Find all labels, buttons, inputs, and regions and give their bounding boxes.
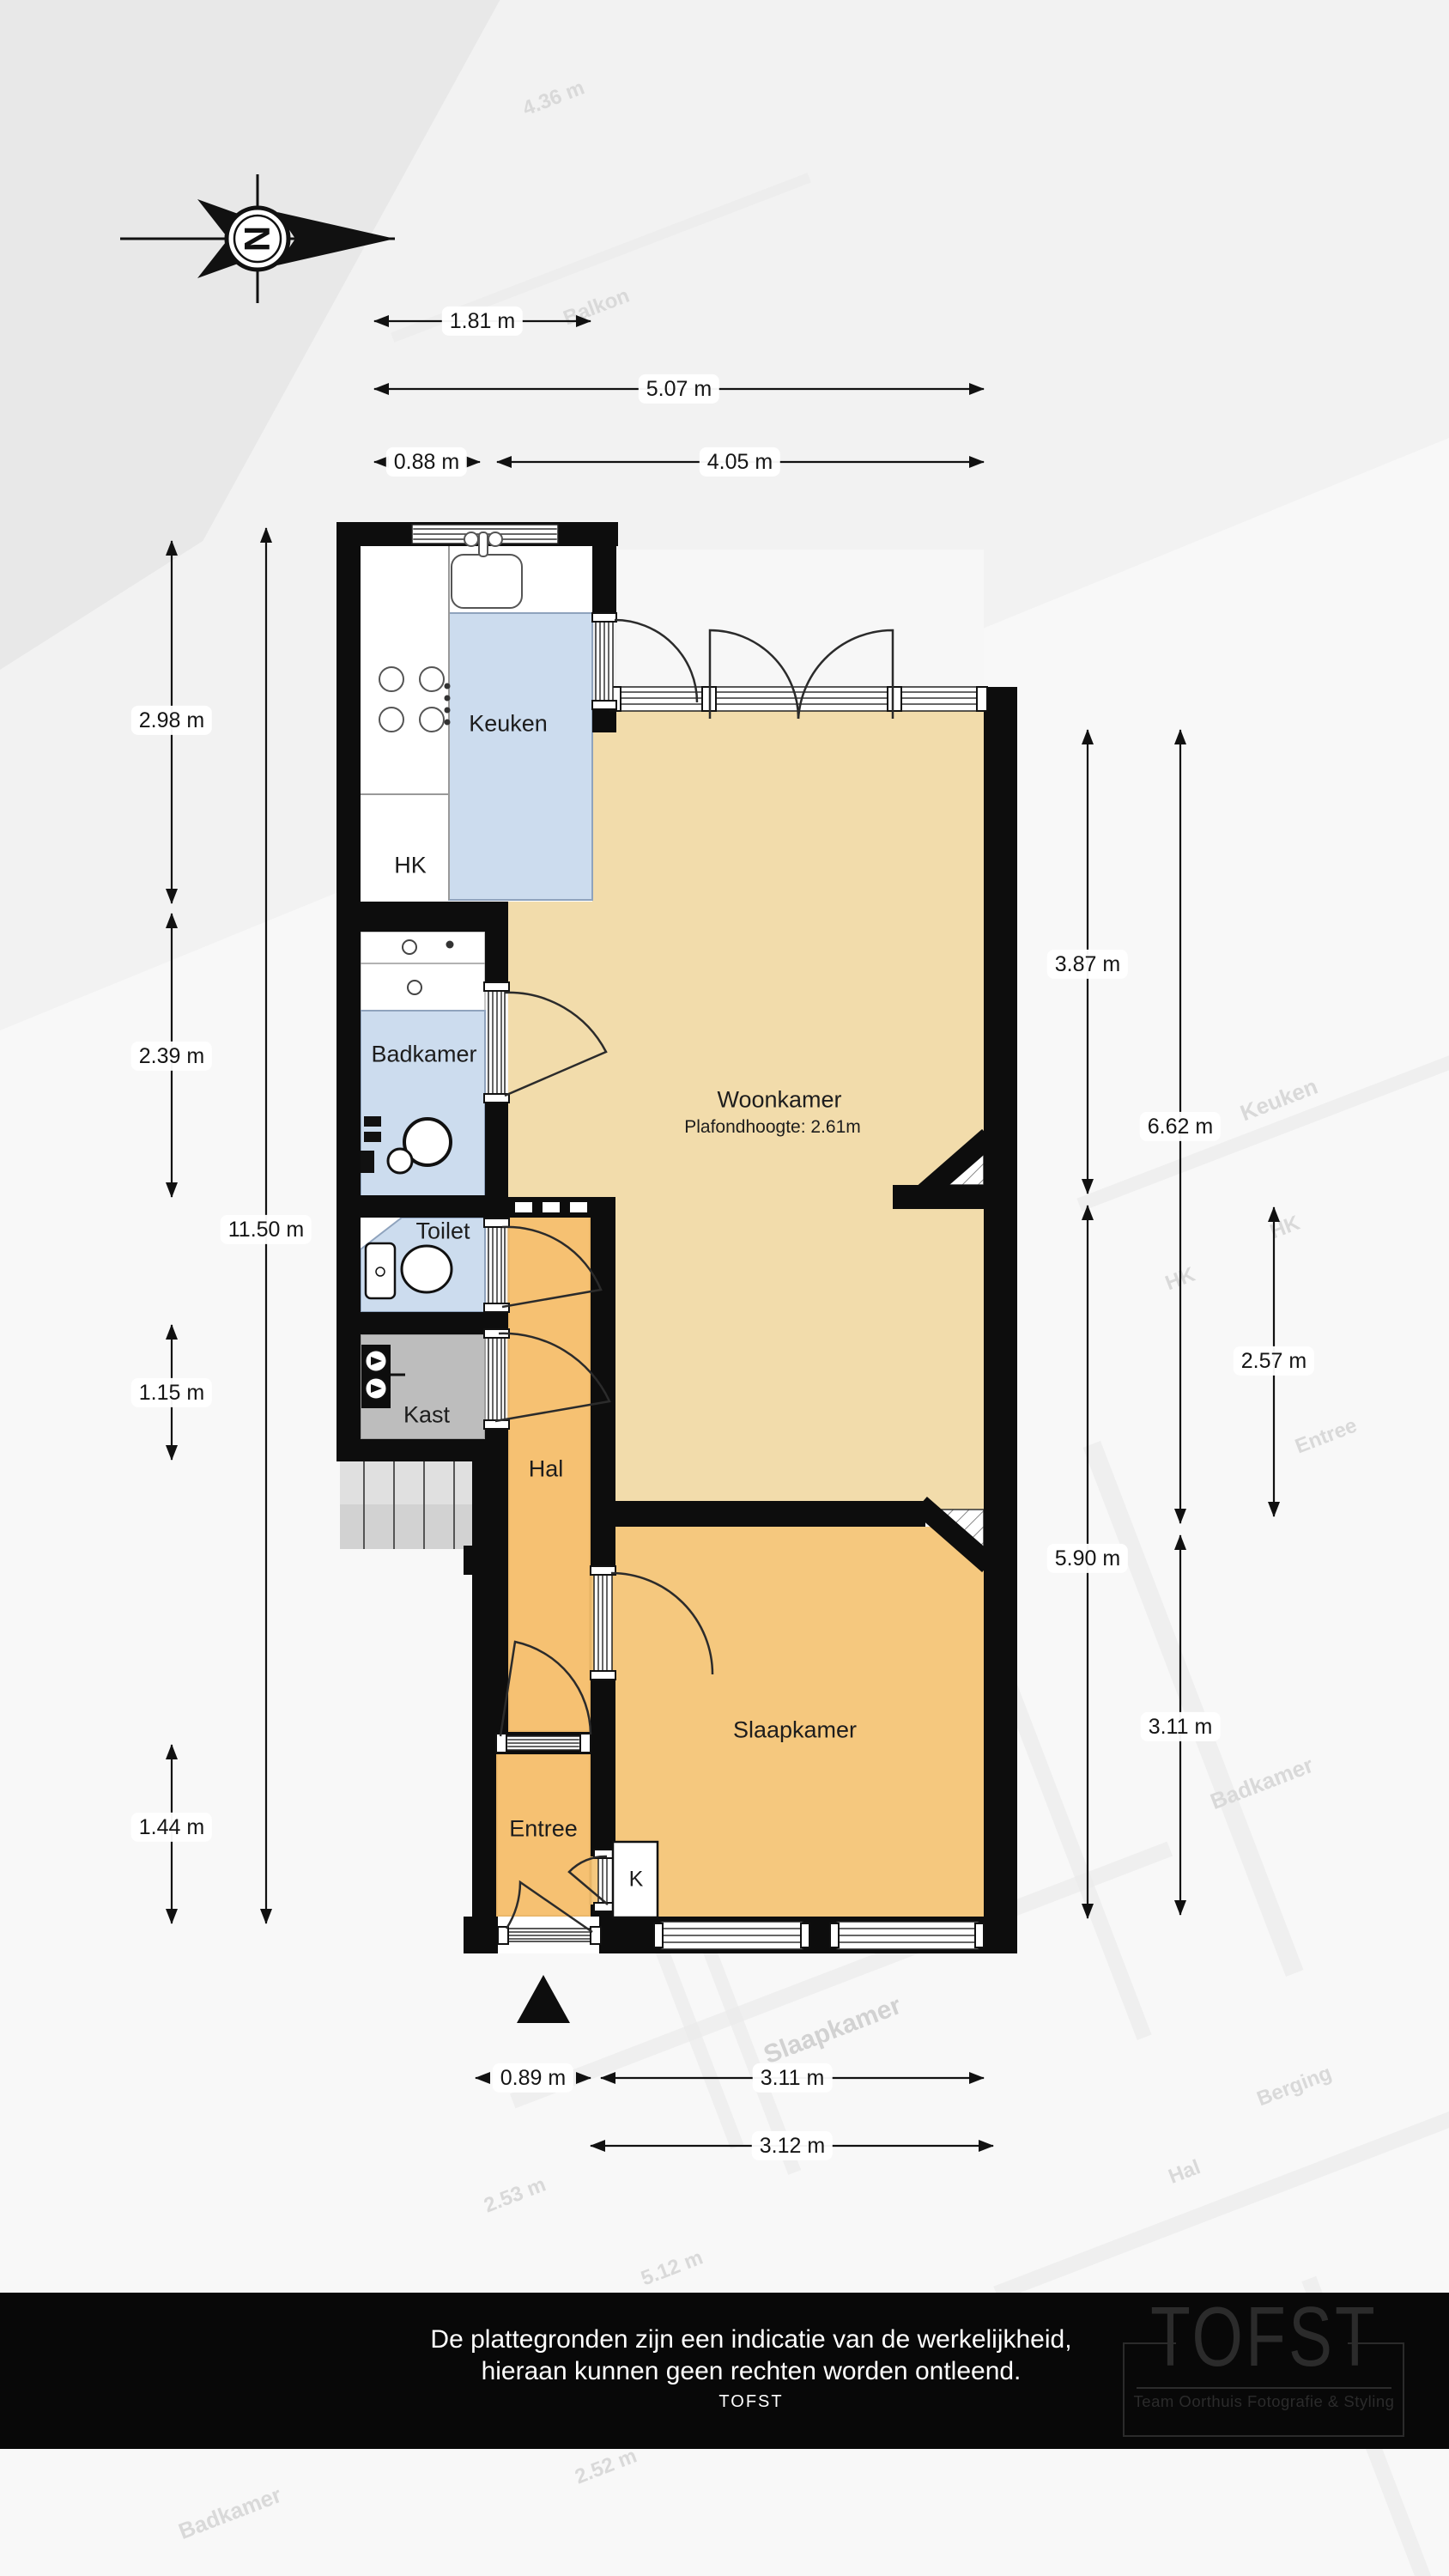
room-label-k: K (629, 1868, 644, 1893)
dim-label: 0.88 m (386, 447, 467, 477)
tofst-logo: TOFST Team Oorthuis Fotografie & Styling (1116, 2301, 1412, 2443)
dim-label: 2.98 m (131, 706, 212, 735)
dim-label: 3.12 m (752, 2131, 833, 2160)
logo-title: TOFST (1149, 2294, 1379, 2379)
entrance-steps (340, 1460, 488, 1549)
room-label-woonkamer: Woonkamer (717, 1087, 841, 1114)
room-label-keuken: Keuken (469, 711, 548, 738)
dim-label: 4.05 m (700, 447, 780, 477)
entrance-arrow-icon (517, 1975, 570, 2023)
dim-label: 3.11 m (753, 2063, 833, 2093)
dim-label: 2.39 m (131, 1042, 212, 1071)
dim-label: 1.81 m (442, 307, 523, 336)
room-label-badkamer: Badkamer (371, 1042, 476, 1068)
dim-label: 2.57 m (1234, 1346, 1314, 1376)
logo-subtitle: Team Oorthuis Fotografie & Styling (1116, 2392, 1412, 2411)
room-label-hk: HK (394, 853, 427, 879)
dim-label: 6.62 m (1140, 1112, 1221, 1141)
floorplan-page: Balkon 4.36 m Keuken HK HK Entree Badkam… (0, 0, 1449, 2576)
footer-disclaimer: De plattegronden zijn een indicatie van … (0, 2293, 1449, 2449)
dim-label: 1.15 m (131, 1378, 212, 1407)
dim-label: 5.90 m (1047, 1544, 1128, 1573)
room-label-slaapkamer: Slaapkamer (733, 1717, 857, 1744)
room-label-toilet: Toilet (415, 1218, 470, 1245)
dim-label: 3.87 m (1047, 950, 1128, 979)
open-boundary-dashes (515, 1202, 587, 1212)
dim-label: 0.89 m (493, 2063, 573, 2093)
dim-label: 1.44 m (131, 1813, 212, 1842)
room-label-kast: Kast (403, 1402, 450, 1429)
logo-divider (1137, 2387, 1391, 2389)
room-label-hal: Hal (529, 1456, 564, 1483)
compass-letter: N (237, 226, 277, 252)
dim-label: 3.11 m (1141, 1712, 1221, 1741)
dim-label: 5.07 m (639, 374, 719, 404)
room-label-entree: Entree (509, 1816, 578, 1843)
floorplan-drawing: N (0, 0, 1449, 2576)
room-ceiling-note: Plafondhoogte: 2.61m (684, 1117, 861, 1138)
balcony-area (616, 550, 984, 689)
compass-icon: N (120, 174, 395, 303)
dim-label: 11.50 m (221, 1215, 312, 1244)
